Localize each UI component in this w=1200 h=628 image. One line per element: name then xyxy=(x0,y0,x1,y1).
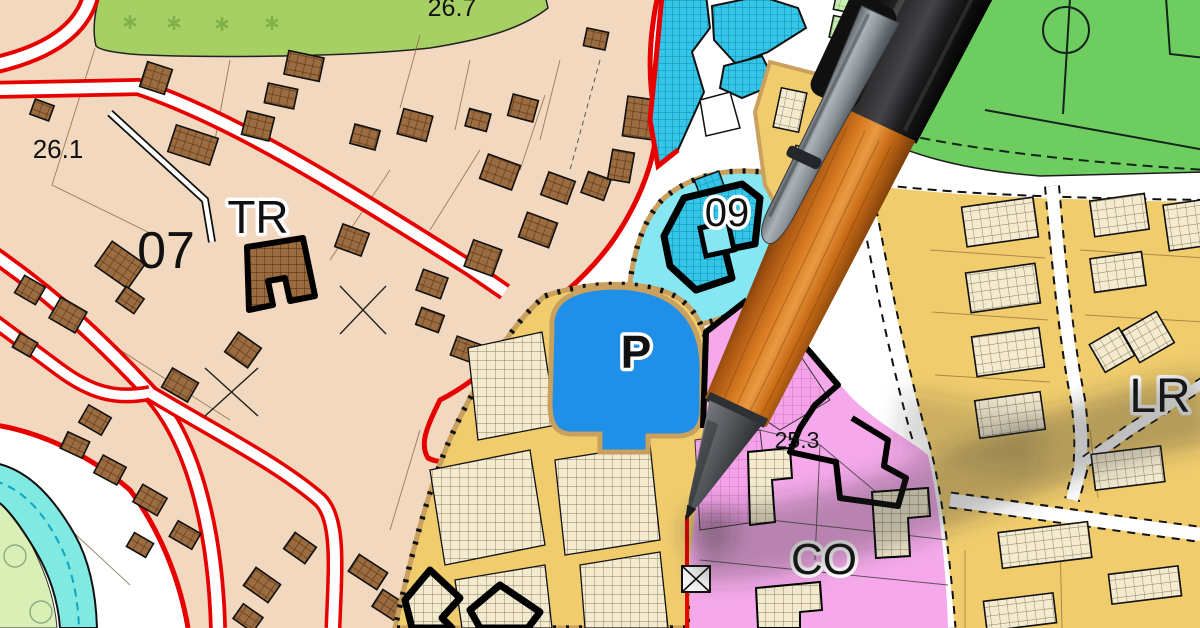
parcel-label-26-1: 26.1 xyxy=(33,134,84,164)
city-block xyxy=(430,450,545,565)
city-block xyxy=(468,332,556,440)
city-block xyxy=(580,552,668,628)
zoning-map-screenshot: 26.1 07 TR 26.7 09 xyxy=(0,0,1200,628)
building xyxy=(1090,252,1146,293)
building xyxy=(608,149,635,182)
building xyxy=(966,263,1041,312)
parking-label: P xyxy=(621,326,652,378)
building xyxy=(1090,193,1149,236)
parcel-label-25-3: 25.3 xyxy=(775,427,820,453)
city-block xyxy=(555,445,660,555)
building xyxy=(972,327,1045,376)
building xyxy=(1163,199,1200,251)
park-label-26-7: 26.7 xyxy=(428,0,477,22)
building xyxy=(583,28,608,50)
zone-label-09: 09 xyxy=(705,191,750,235)
zoning-map: 26.1 07 TR 26.7 09 xyxy=(0,0,1200,628)
zone-label-07: 07 xyxy=(137,222,195,280)
zone-label-tr: TR xyxy=(227,191,288,243)
